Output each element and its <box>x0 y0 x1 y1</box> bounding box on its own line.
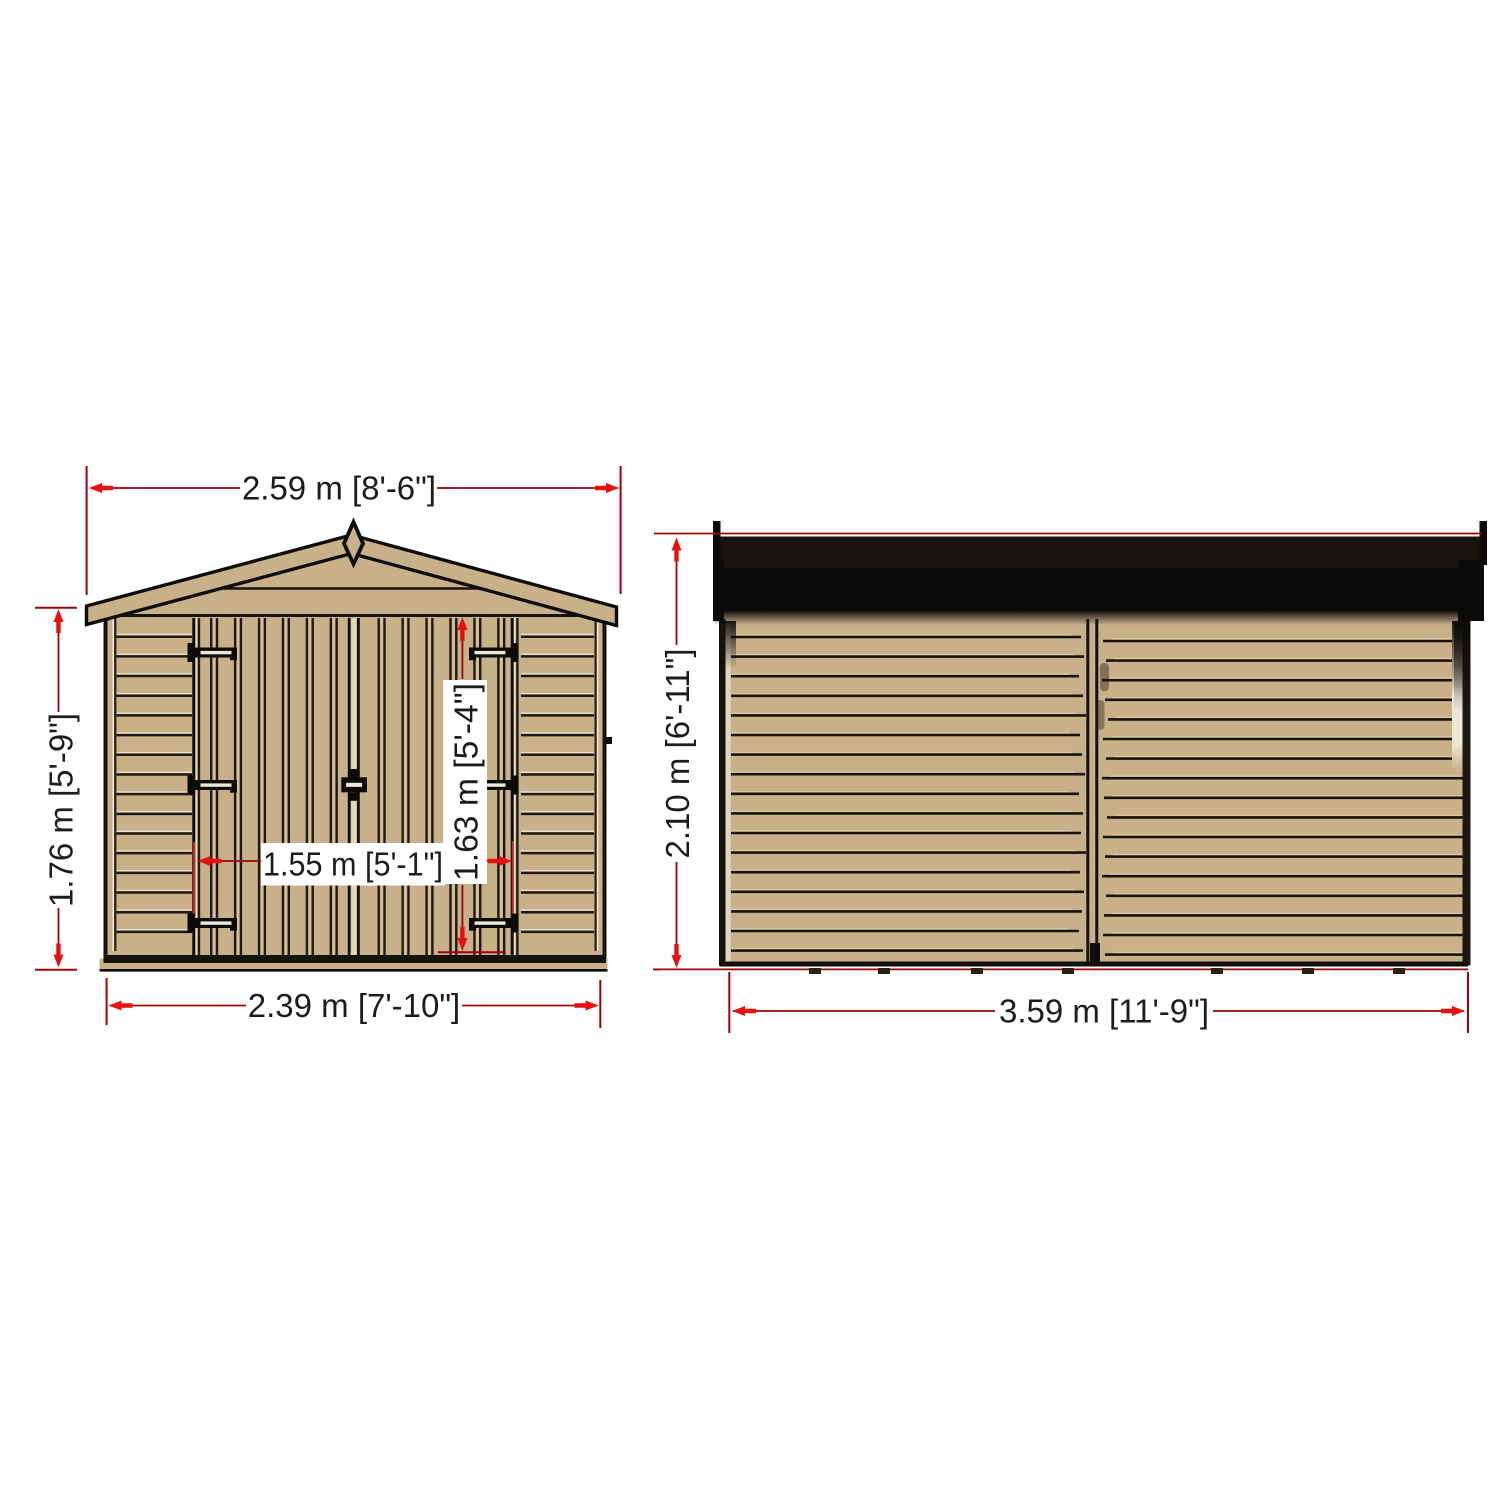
svg-text:1.76 m [5'-9"]: 1.76 m [5'-9"] <box>43 713 80 907</box>
svg-text:2.39 m [7'-10"]: 2.39 m [7'-10"] <box>248 987 460 1024</box>
svg-text:2.59 m [8'-6"]: 2.59 m [8'-6"] <box>242 470 436 507</box>
svg-text:3.59 m [11'-9"]: 3.59 m [11'-9"] <box>999 993 1209 1030</box>
svg-text:1.63 m [5'-4"]: 1.63 m [5'-4"] <box>448 683 485 881</box>
svg-text:1.55 m [5'-1"]: 1.55 m [5'-1"] <box>263 846 443 883</box>
svg-text:2.10 m [6'-11"]: 2.10 m [6'-11"] <box>659 648 696 858</box>
